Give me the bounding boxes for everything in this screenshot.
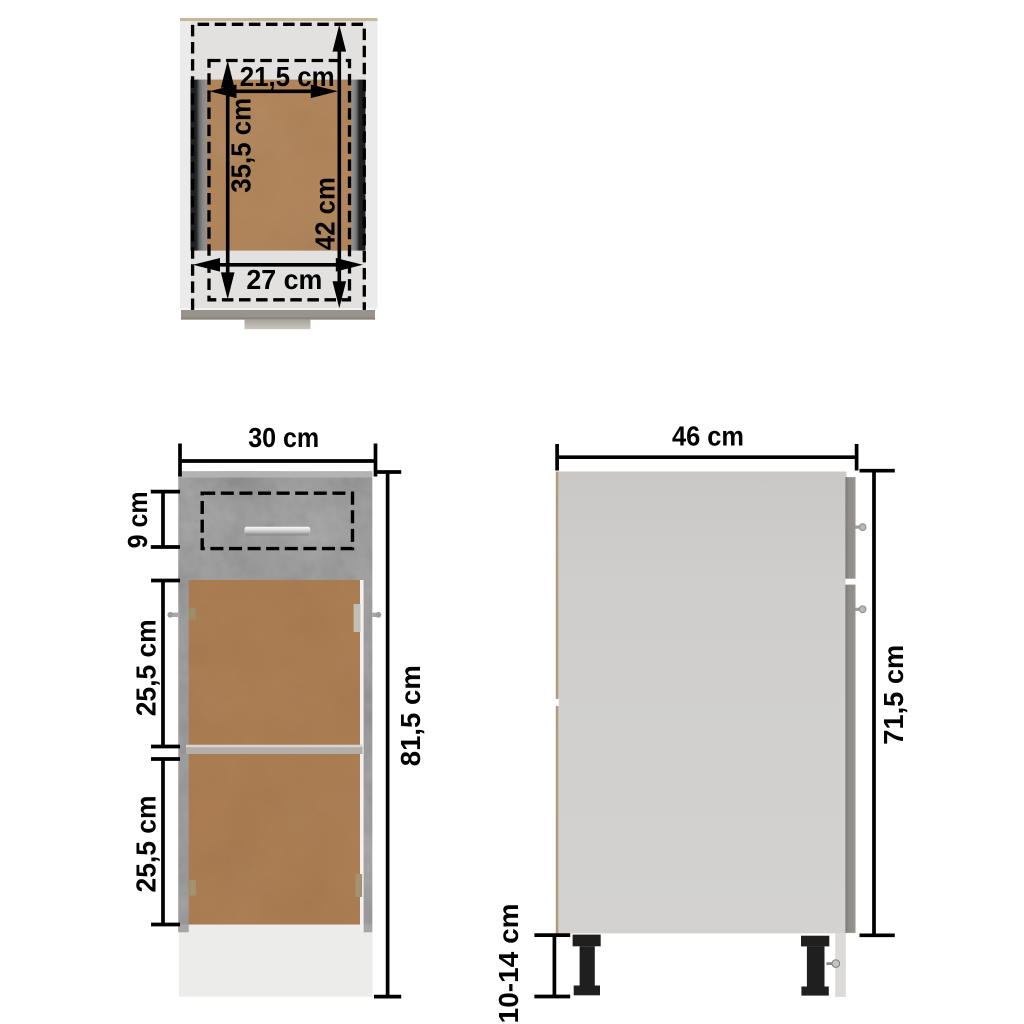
svg-text:81,5 cm: 81,5 cm (395, 665, 426, 766)
svg-text:35,5 cm: 35,5 cm (226, 98, 257, 193)
svg-text:25,5 cm: 25,5 cm (131, 619, 162, 716)
svg-text:42 cm: 42 cm (309, 177, 340, 250)
svg-text:25,5 cm: 25,5 cm (131, 796, 162, 893)
svg-text:46 cm: 46 cm (672, 421, 744, 452)
svg-text:9 cm: 9 cm (122, 491, 153, 548)
svg-text:30 cm: 30 cm (248, 422, 319, 453)
svg-text:21,5 cm: 21,5 cm (240, 61, 335, 92)
svg-text:27 cm: 27 cm (246, 264, 322, 295)
svg-text:71,5 cm: 71,5 cm (878, 645, 909, 745)
svg-text:10-14 cm: 10-14 cm (493, 903, 524, 1023)
